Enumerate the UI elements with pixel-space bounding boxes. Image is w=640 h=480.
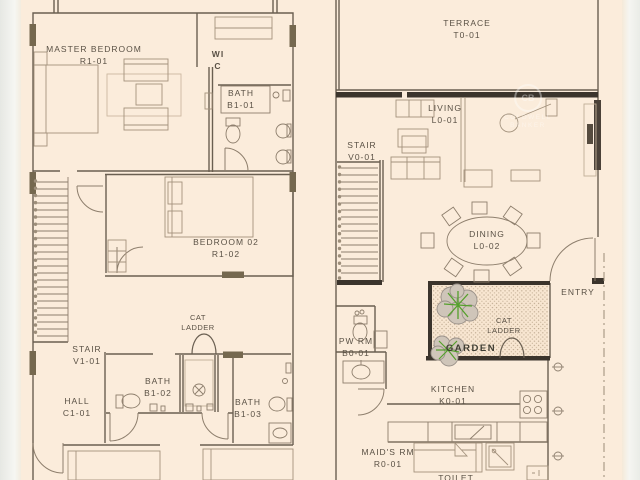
room-label-master-bedroom: MASTER BEDROOMR1-01: [46, 44, 142, 67]
room-label-maids-rm: MAID'S RMR0-01: [361, 447, 414, 470]
floor-plan-drawing: [0, 0, 640, 480]
room-label-dining: DININGL0-02: [469, 229, 505, 252]
room-label-bath-b1-02: BATHB1-02: [144, 376, 172, 399]
floor-plan-image: CB COLDWELL BANKER MASTER BEDROOMR1-01 W…: [0, 0, 640, 480]
page-edge-left: [0, 0, 21, 480]
room-label-stair-v0-01: STAIRV0-01: [347, 140, 376, 163]
room-label-bath-b1-01: BATHB1-01: [227, 88, 255, 111]
room-label-entry: ENTRY: [561, 287, 595, 299]
page-edge-right: [622, 0, 640, 480]
room-label-garden: GARDEN: [446, 343, 496, 355]
room-label-living: LIVINGL0-01: [428, 103, 462, 126]
room-label-terrace: TERRACET0-01: [443, 18, 491, 41]
room-label-bath-b1-03: BATHB1-03: [234, 397, 262, 420]
room-label-toilet: TOILET: [438, 473, 474, 480]
room-label-wic: WIC: [212, 49, 224, 72]
room-label-hall: HALLC1-01: [63, 396, 91, 419]
label-cat-ladder-ground: CATLADDER: [487, 316, 520, 335]
label-cat-ladder-upper: CATLADDER: [181, 313, 214, 332]
room-label-pw-rm: PW RMB0-01: [339, 336, 373, 359]
room-label-stair-v1-01: STAIRV1-01: [72, 344, 101, 367]
room-label-bedroom-02: BEDROOM 02R1-02: [193, 237, 259, 260]
room-label-kitchen: KITCHENK0-01: [431, 384, 475, 407]
